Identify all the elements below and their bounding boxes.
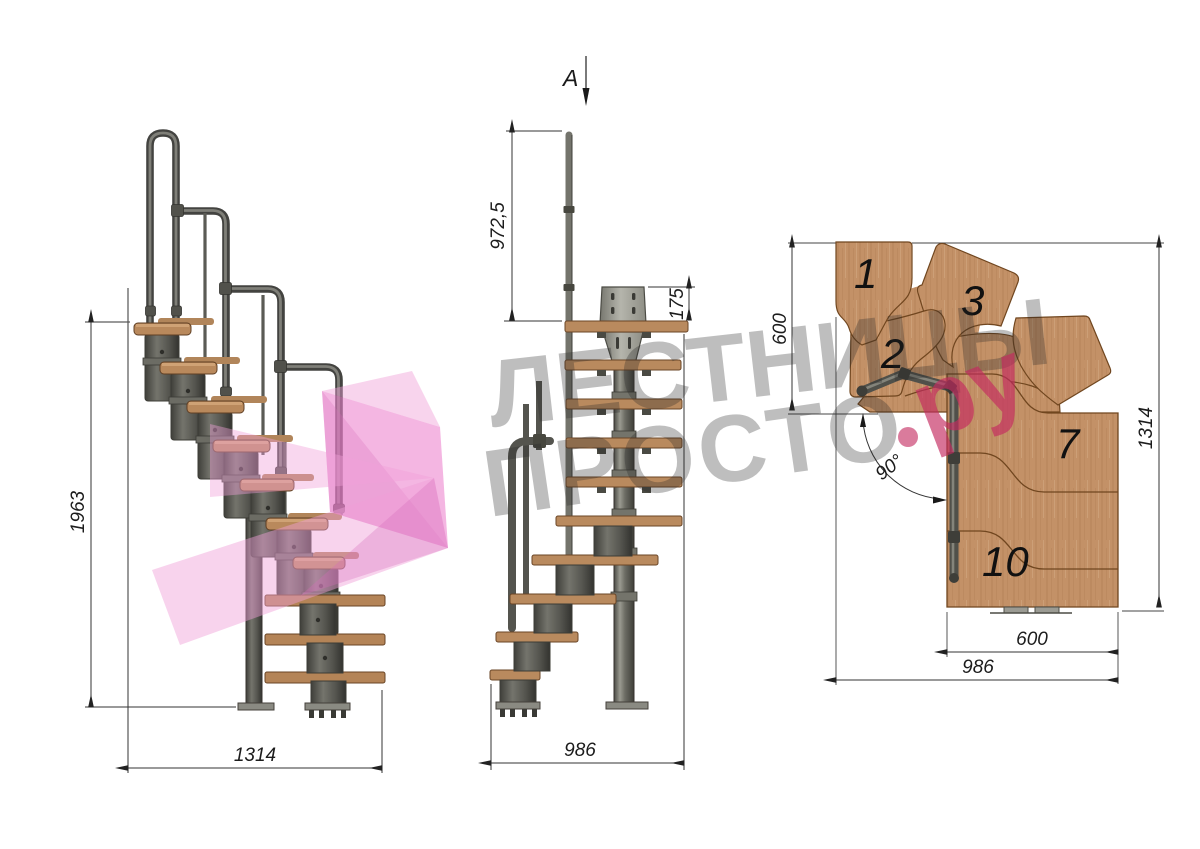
- svg-text:A: A: [561, 65, 578, 91]
- svg-text:986: 986: [962, 657, 994, 678]
- svg-text:600: 600: [1016, 629, 1048, 650]
- svg-text:10: 10: [982, 538, 1029, 585]
- svg-text:1: 1: [854, 250, 877, 297]
- svg-text:986: 986: [564, 740, 596, 761]
- svg-text:1314: 1314: [1136, 407, 1157, 449]
- svg-text:7: 7: [1056, 420, 1081, 467]
- svg-text:1963: 1963: [68, 490, 89, 533]
- svg-text:1314: 1314: [234, 745, 276, 766]
- svg-text:972,5: 972,5: [488, 202, 509, 250]
- svg-text:175: 175: [667, 288, 688, 320]
